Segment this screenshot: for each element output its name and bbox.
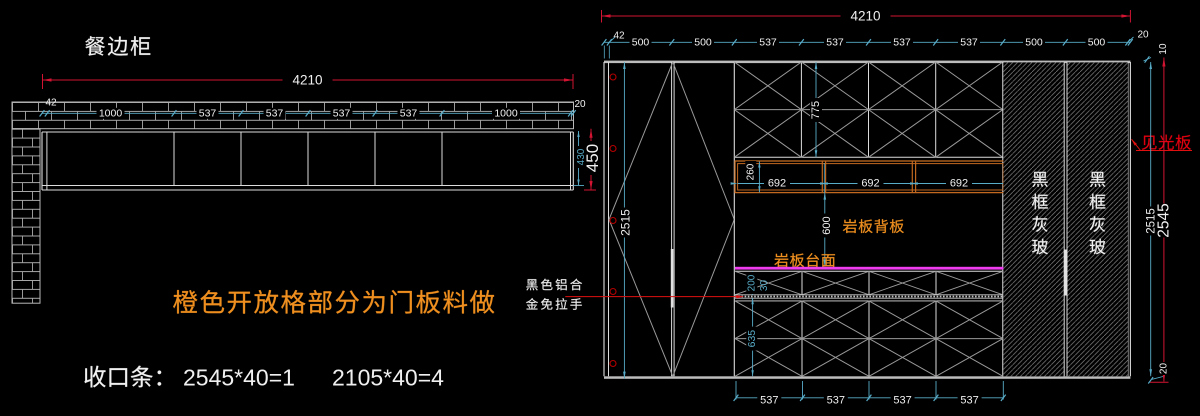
svg-text:537: 537 (893, 395, 911, 407)
svg-text:1000: 1000 (99, 107, 123, 119)
svg-text:537: 537 (960, 395, 978, 407)
svg-text:2545*40=1: 2545*40=1 (183, 365, 295, 391)
svg-text:537: 537 (960, 36, 978, 48)
svg-text:600: 600 (821, 216, 833, 234)
svg-text:537: 537 (333, 107, 351, 119)
svg-text:692: 692 (950, 178, 968, 190)
svg-text:4210: 4210 (292, 73, 322, 88)
svg-text:500: 500 (632, 36, 650, 48)
svg-text:450: 450 (583, 144, 602, 172)
svg-text:537: 537 (826, 36, 844, 48)
svg-text:20: 20 (574, 99, 586, 110)
svg-text:200: 200 (746, 274, 757, 291)
svg-text:4210: 4210 (850, 9, 880, 24)
svg-text:692: 692 (768, 178, 786, 190)
svg-text:2545: 2545 (1156, 203, 1173, 237)
svg-text:537: 537 (759, 36, 777, 48)
svg-text:20: 20 (1137, 30, 1149, 41)
svg-text:20: 20 (1158, 363, 1169, 375)
svg-text:2515: 2515 (618, 209, 632, 236)
svg-text:500: 500 (694, 36, 712, 48)
svg-text:30: 30 (759, 280, 770, 292)
svg-text:635: 635 (746, 330, 758, 348)
svg-text:42: 42 (613, 31, 625, 42)
svg-text:500: 500 (1088, 36, 1106, 48)
svg-text:537: 537 (893, 36, 911, 48)
svg-text:537: 537 (199, 107, 217, 119)
svg-text:537: 537 (400, 107, 418, 119)
svg-text:537: 537 (266, 107, 284, 119)
svg-text:260: 260 (745, 163, 756, 180)
svg-text:42: 42 (45, 98, 57, 109)
svg-text:537: 537 (827, 395, 845, 407)
svg-text:692: 692 (861, 178, 879, 190)
svg-text:775: 775 (810, 101, 822, 119)
svg-text:500: 500 (1025, 36, 1043, 48)
svg-text:10: 10 (1158, 43, 1169, 55)
svg-text:1000: 1000 (494, 107, 518, 119)
svg-text:2105*40=4: 2105*40=4 (332, 365, 444, 391)
svg-text:537: 537 (760, 395, 778, 407)
